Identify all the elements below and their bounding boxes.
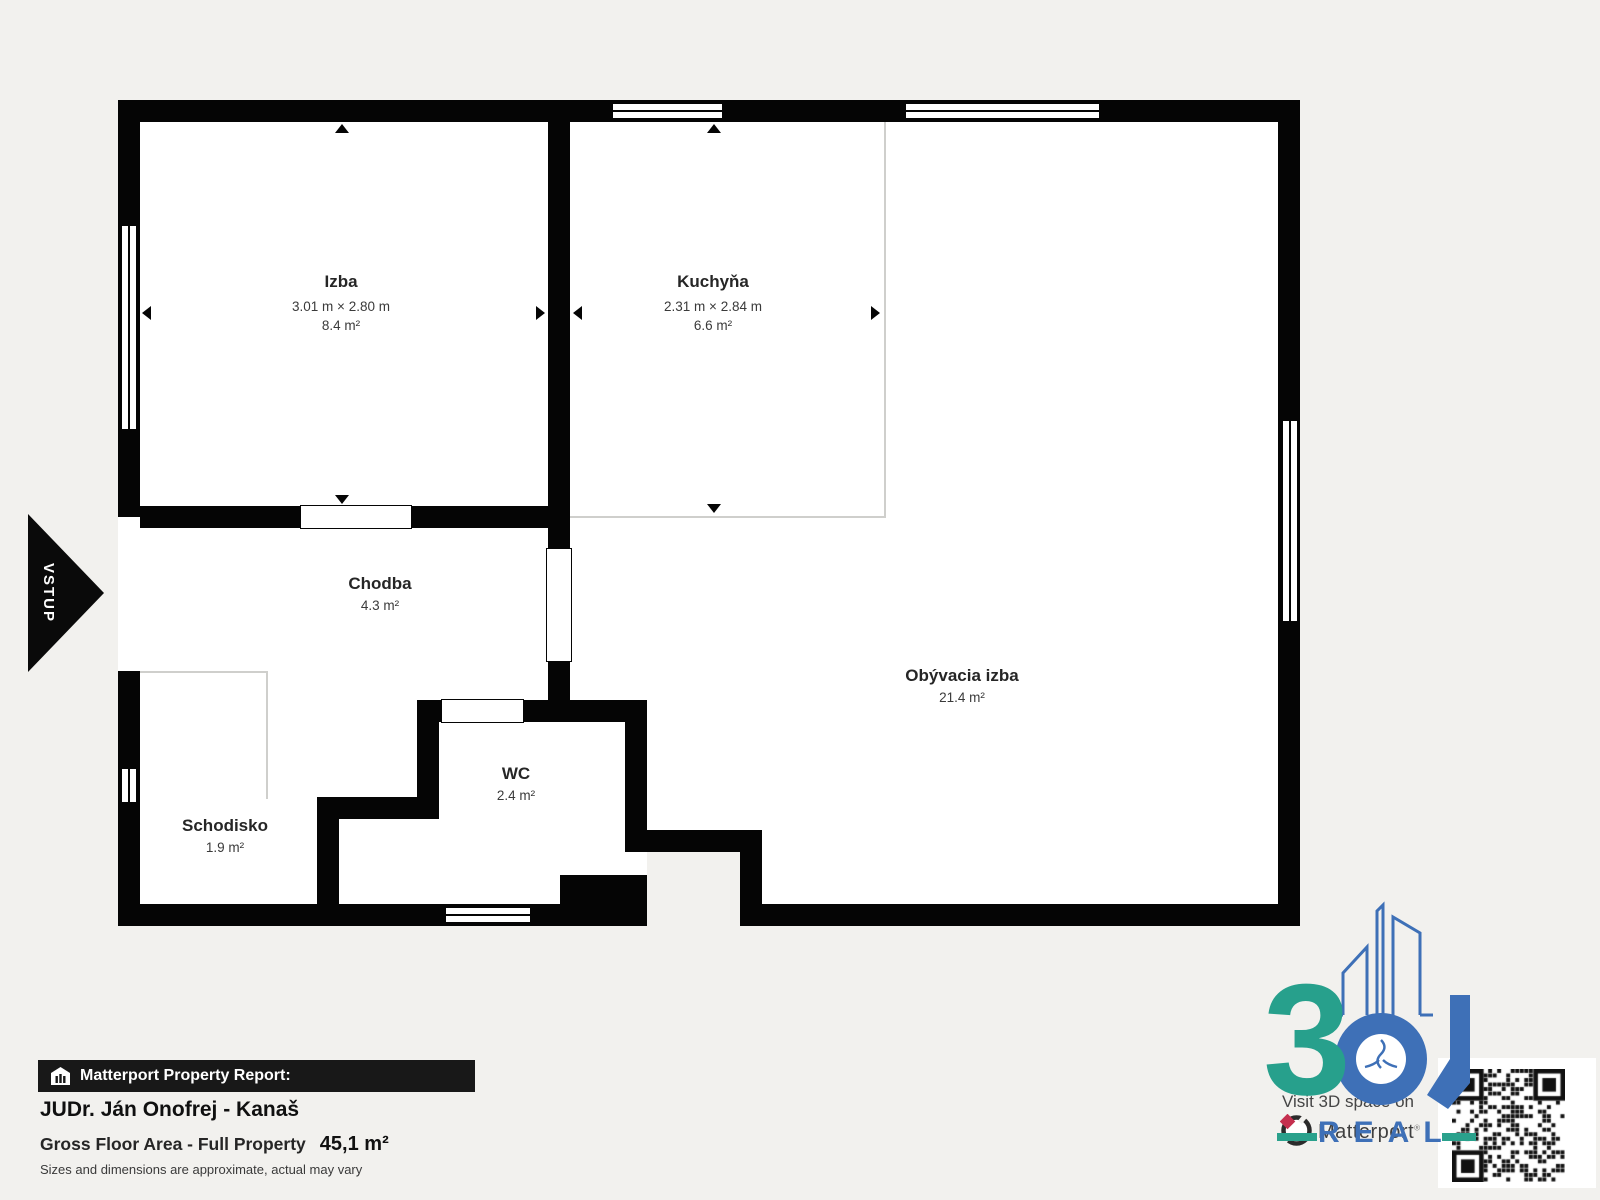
exterior-notch: [647, 852, 740, 926]
logo-arrow-icon: [1423, 993, 1483, 1113]
room-area: 8.4 m²: [292, 318, 390, 333]
report-bar-label: Matterport Property Report:: [80, 1067, 291, 1085]
property-name: JUDr. Ján Onofrej - Kanaš: [40, 1098, 299, 1122]
measure-arrow-icon: [536, 306, 545, 320]
room-name: WC: [497, 764, 535, 784]
wall-step: [625, 830, 762, 852]
stairs-boundary-line: [140, 671, 268, 673]
measure-arrow-icon: [707, 504, 721, 513]
entrance-arrow: VSTUP: [28, 514, 104, 672]
room-label-izba: Izba 3.01 m × 2.80 m 8.4 m²: [292, 272, 390, 333]
measure-arrow-icon: [573, 306, 582, 320]
property-report-page: { "background_color": "#f2f1ee", "entran…: [0, 0, 1600, 1200]
disclaimer-text: Sizes and dimensions are approximate, ac…: [40, 1162, 362, 1177]
wall-bottom-right: [740, 904, 1300, 926]
window: [121, 768, 137, 803]
room-name: Schodisko: [182, 816, 268, 836]
wall-stairs-divider: [317, 797, 339, 926]
door-opening: [441, 699, 524, 723]
room-label-kuchyna: Kuchyňa 2.31 m × 2.84 m 6.6 m²: [664, 272, 762, 333]
window: [612, 103, 723, 119]
room-area: 4.3 m²: [348, 598, 411, 613]
report-header-bar: Matterport Property Report:: [38, 1060, 475, 1092]
door-opening: [546, 548, 572, 662]
window: [905, 103, 1100, 119]
agency-logo: 3 REAL: [1255, 895, 1495, 1165]
gross-floor-area-label: Gross Floor Area - Full Property: [40, 1134, 306, 1154]
room-name: Izba: [292, 272, 390, 292]
wall-divider-vertical: [548, 122, 570, 548]
room-area: 6.6 m²: [664, 318, 762, 333]
room-area: 2.4 m²: [497, 788, 535, 803]
measure-arrow-icon: [707, 124, 721, 133]
entrance-label: VSTUP: [40, 563, 57, 623]
window: [445, 907, 531, 923]
kitchen-boundary-line: [570, 516, 886, 518]
logo-real-text: REAL: [1318, 1116, 1456, 1150]
room-label-wc: WC 2.4 m²: [497, 764, 535, 803]
room-label-chodba: Chodba 4.3 m²: [348, 574, 411, 613]
building-icon: [51, 1067, 70, 1085]
room-dimensions: 2.31 m × 2.84 m: [664, 299, 762, 314]
room-name: Chodba: [348, 574, 411, 594]
wall-fill: [560, 875, 647, 926]
room-label-obyvacia-izba: Obývacia izba 21.4 m²: [905, 666, 1018, 705]
window: [1282, 420, 1298, 622]
room-dimensions: 3.01 m × 2.80 m: [292, 299, 390, 314]
room-name: Kuchyňa: [664, 272, 762, 292]
door-entrance: [118, 516, 140, 672]
gross-floor-area-line: Gross Floor Area - Full Property45,1 m²: [40, 1133, 389, 1156]
logo-3: 3: [1263, 961, 1351, 1119]
room-area: 21.4 m²: [905, 690, 1018, 705]
measure-arrow-icon: [871, 306, 880, 320]
window: [121, 225, 137, 430]
logo-dash: [1442, 1133, 1476, 1141]
room-name: Obývacia izba: [905, 666, 1018, 686]
logo-dash: [1277, 1133, 1317, 1141]
door-opening: [300, 505, 412, 529]
room-area: 1.9 m²: [182, 840, 268, 855]
stairs-boundary-line: [266, 671, 268, 799]
gross-floor-area-value: 45,1 m²: [320, 1133, 389, 1155]
measure-arrow-icon: [142, 306, 151, 320]
measure-arrow-icon: [335, 124, 349, 133]
kitchen-boundary-line: [884, 122, 886, 518]
room-label-schodisko: Schodisko 1.9 m²: [182, 816, 268, 855]
measure-arrow-icon: [335, 495, 349, 504]
wall-step: [740, 852, 762, 926]
